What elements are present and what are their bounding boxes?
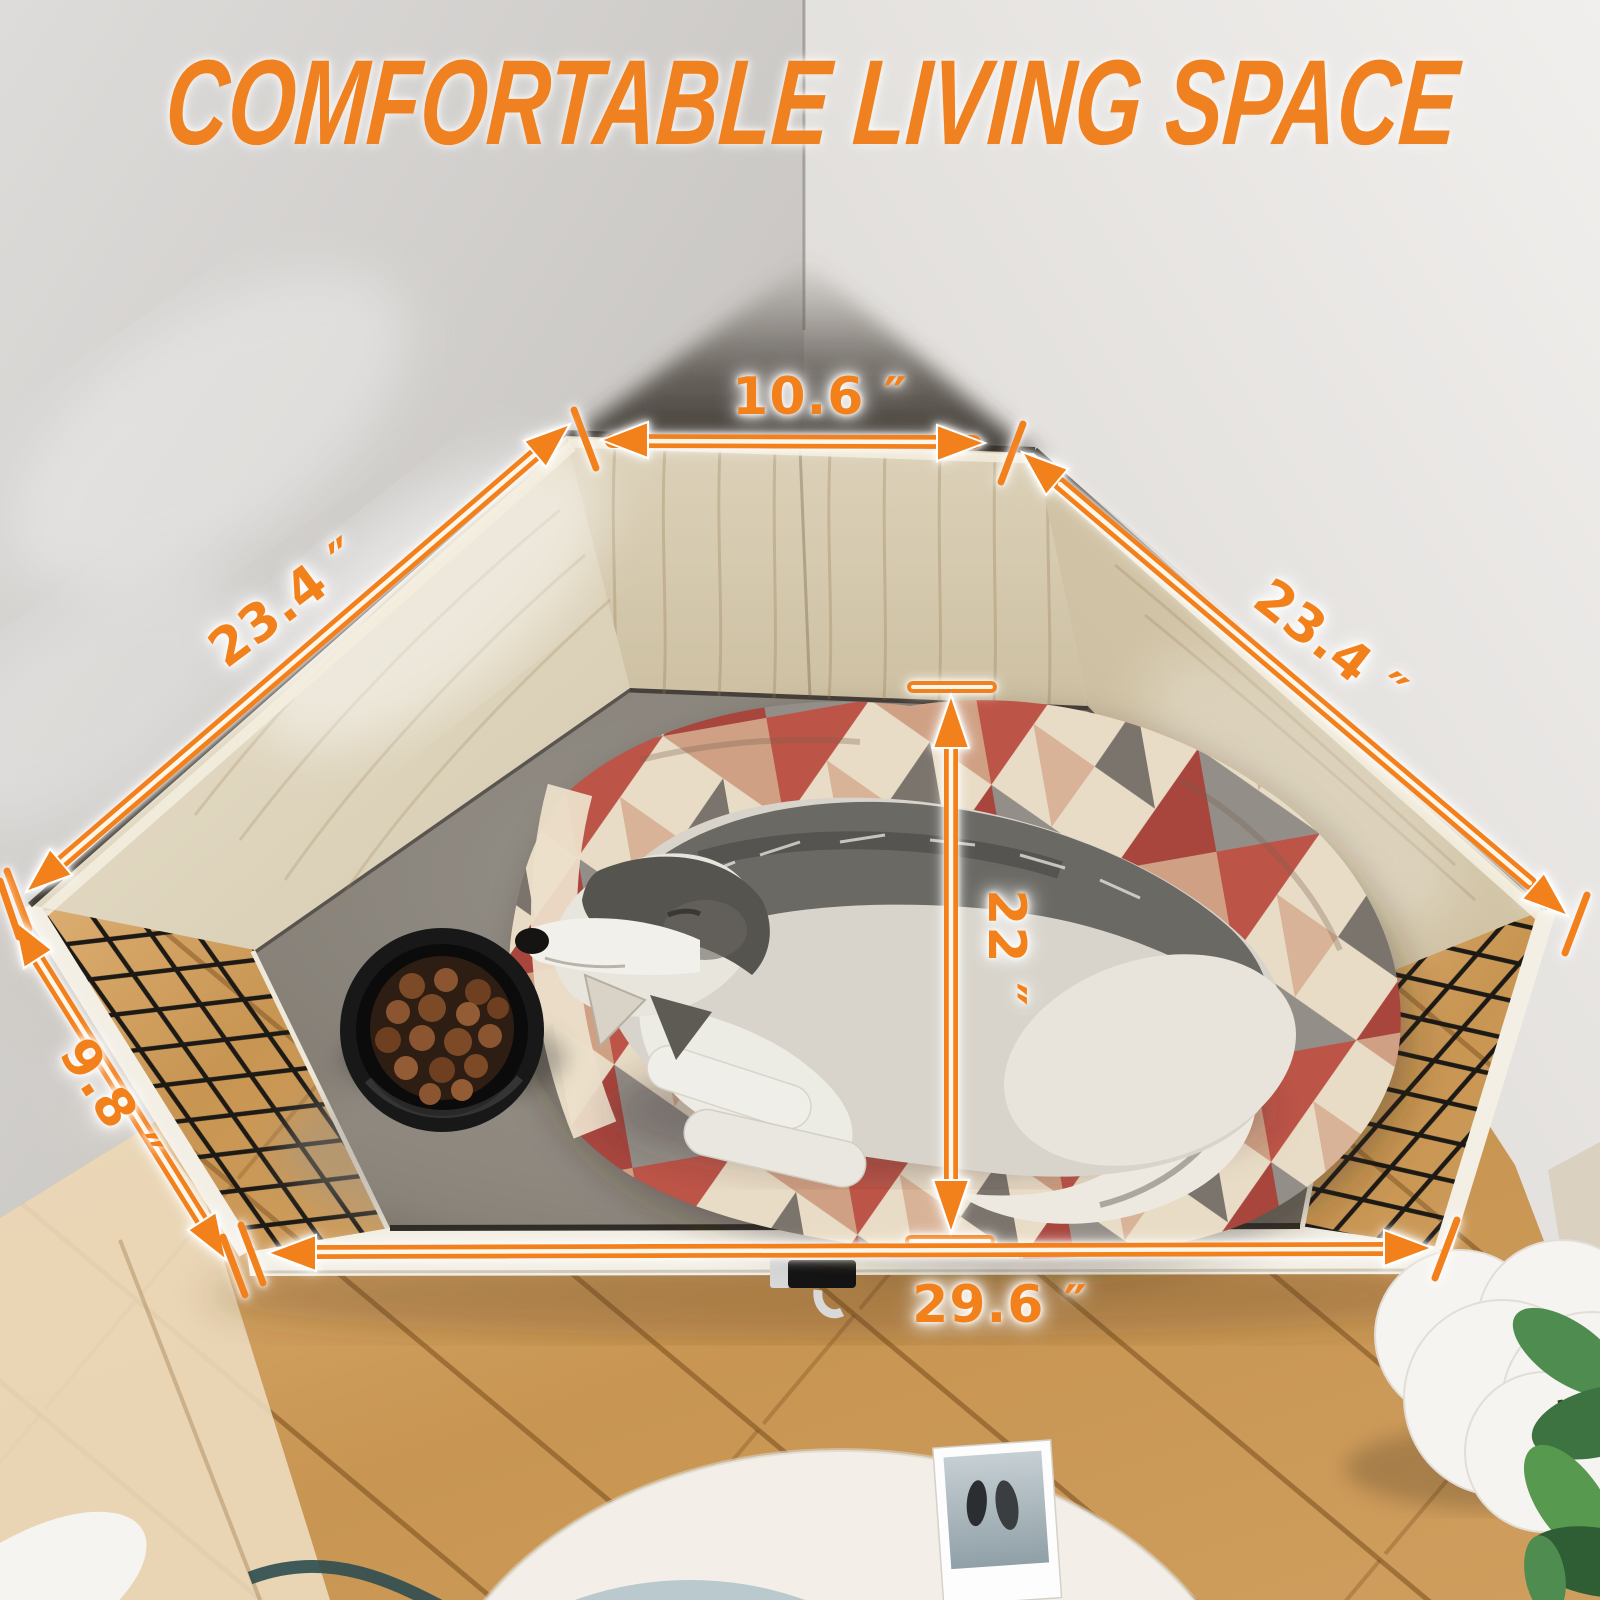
headline: COMFORTABLE LIVING SPACE xyxy=(161,32,1463,172)
photo-card xyxy=(933,1440,1062,1600)
dim-label-back-width: 10.6 ″ xyxy=(732,367,908,427)
dim-label-inner-depth: 22 ″ xyxy=(976,889,1036,1007)
scene xyxy=(0,0,1600,1600)
back-panel xyxy=(565,433,1088,706)
dim-label-front-width: 29.6 ″ xyxy=(912,1275,1088,1335)
product-dimension-diagram: COMFORTABLE LIVING SPACE 10.6 ″ 23.4 ″ 2… xyxy=(0,0,1600,1600)
nose xyxy=(515,928,549,954)
